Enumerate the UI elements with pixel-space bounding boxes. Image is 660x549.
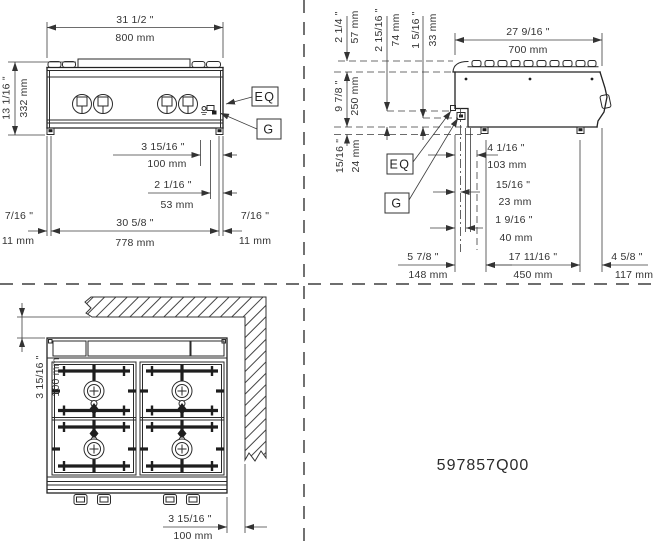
side-depth-in: 27 9/16 " (506, 26, 550, 38)
plan-vent-grille (88, 341, 190, 356)
front-g-label: G (263, 123, 274, 137)
front-dim-width: 31 1/2 " 800 mm (47, 14, 223, 58)
side-dim-23: 15/16 " 23 mm (433, 179, 532, 208)
side-callout-eq: EQ (387, 111, 451, 174)
side-dims-left: 2 1/4 " 57 mm 2 15/16 " 74 mm 1 5/16 " 3… (333, 8, 481, 173)
spec-sheet: 31 1/2 " 800 mm 13 1/16 " 332 mm 3 15/16… (0, 0, 660, 549)
side-grate-h-in: 2 1/4 " (333, 11, 345, 42)
front-callout-eq: EQ (226, 87, 278, 106)
side-off103-mm: 103 mm (487, 159, 526, 171)
plan-clear-left-mm: 100 mm (50, 357, 62, 396)
front-off100-mm: 100 mm (147, 158, 186, 170)
front-foot-left (47, 128, 54, 135)
drawing-canvas: 31 1/2 " 800 mm 13 1/16 " 332 mm 3 15/16… (0, 0, 660, 549)
side-g-label: G (391, 197, 402, 211)
side-gas-inlet (457, 113, 465, 120)
front-gas-inlet (207, 106, 217, 115)
side-body-h-mm: 250 mm (349, 76, 361, 115)
front-span-in: 30 5/8 " (116, 217, 154, 229)
plan-unit-outline (47, 338, 227, 493)
front-dim-height: 13 1/16 " 332 mm (1, 62, 77, 135)
plan-view: 3 15/16 " 100 mm 3 15/16 " 100 mm (17, 297, 267, 542)
side-off103-in: 4 1/16 " (487, 142, 525, 154)
front-foot-right (216, 128, 223, 135)
front-dim-53: 2 1/16 " 53 mm (148, 179, 237, 211)
front-eq-terminal (201, 107, 207, 115)
plan-knobs (74, 495, 200, 505)
front-callout-g: G (220, 113, 281, 139)
side-grate-h-mm: 57 mm (349, 10, 361, 43)
side-off450-mm: 450 mm (513, 269, 552, 281)
side-off148-mm: 148 mm (408, 269, 447, 281)
front-width-mm: 800 mm (115, 32, 154, 44)
front-inset-right-in: 7/16 " (241, 210, 269, 222)
front-height-in: 13 1/16 " (1, 76, 13, 120)
side-off117-in: 4 5/8 " (611, 251, 642, 263)
plan-clear-left-in: 3 15/16 " (34, 355, 46, 399)
side-eq-h-in: 2 15/16 " (373, 8, 385, 52)
front-height-mm: 332 mm (18, 78, 30, 117)
side-off148-in: 5 7/8 " (407, 251, 438, 263)
front-eq-label: EQ (254, 90, 275, 104)
plan-clear-right-mm: 100 mm (173, 530, 212, 542)
side-off23-mm: 23 mm (498, 196, 531, 208)
side-gas-h-mm: 33 mm (427, 13, 439, 46)
front-width-in: 31 1/2 " (116, 14, 154, 26)
plan-burner-module-right (140, 362, 224, 475)
side-dim-40: 1 9/16 " 40 mm (430, 214, 533, 244)
side-off450-in: 17 11/16 " (509, 251, 558, 263)
plan-dim-right: 3 15/16 " 100 mm (163, 464, 267, 542)
side-eq-label: EQ (389, 158, 410, 172)
front-inset-left-in: 7/16 " (5, 210, 33, 222)
front-grate-strip (78, 59, 190, 68)
front-dim-bottom: 7/16 " 11 mm 30 5/8 " 778 mm 7/16 " 11 m… (2, 210, 271, 249)
side-off40-in: 1 9/16 " (495, 214, 533, 226)
front-off100-in: 3 15/16 " (141, 141, 185, 153)
front-span-mm: 778 mm (115, 237, 154, 249)
part-number: 597857Q00 (437, 457, 530, 474)
side-off40-mm: 40 mm (499, 232, 532, 244)
front-off53-mm: 53 mm (160, 199, 193, 211)
side-foot-h-mm: 24 mm (350, 139, 362, 172)
side-body-h-in: 9 7/8 " (333, 80, 345, 111)
front-off53-in: 2 1/16 " (154, 179, 192, 191)
side-grate-fingers (472, 61, 596, 67)
front-inset-right-mm: 11 mm (239, 235, 271, 247)
front-view: 31 1/2 " 800 mm 13 1/16 " 332 mm 3 15/16… (1, 14, 282, 249)
plan-burner-module-left (52, 362, 136, 475)
front-dim-100: 3 15/16 " 100 mm (113, 141, 237, 170)
side-dim-bottom: 5 7/8 " 148 mm 17 11/16 " 450 mm 4 5/8 "… (398, 251, 653, 281)
side-eq-h-mm: 74 mm (390, 13, 402, 46)
side-off23-in: 15/16 " (496, 179, 530, 191)
front-knobs (73, 95, 198, 114)
side-foot-front (577, 127, 584, 134)
plan-clear-right-in: 3 15/16 " (168, 513, 212, 525)
side-foot-rear (481, 127, 488, 134)
side-depth-mm: 700 mm (508, 44, 547, 56)
side-foot-h-in: 15/16 " (334, 139, 346, 173)
side-off117-mm: 117 mm (615, 269, 653, 281)
side-gas-h-in: 1 5/16 " (410, 11, 422, 49)
wall-section (85, 297, 266, 461)
side-view: 27 9/16 " 700 mm 2 1/4 " 57 mm 2 15/16 "… (333, 8, 653, 281)
front-inset-left-mm: 11 mm (2, 235, 34, 247)
